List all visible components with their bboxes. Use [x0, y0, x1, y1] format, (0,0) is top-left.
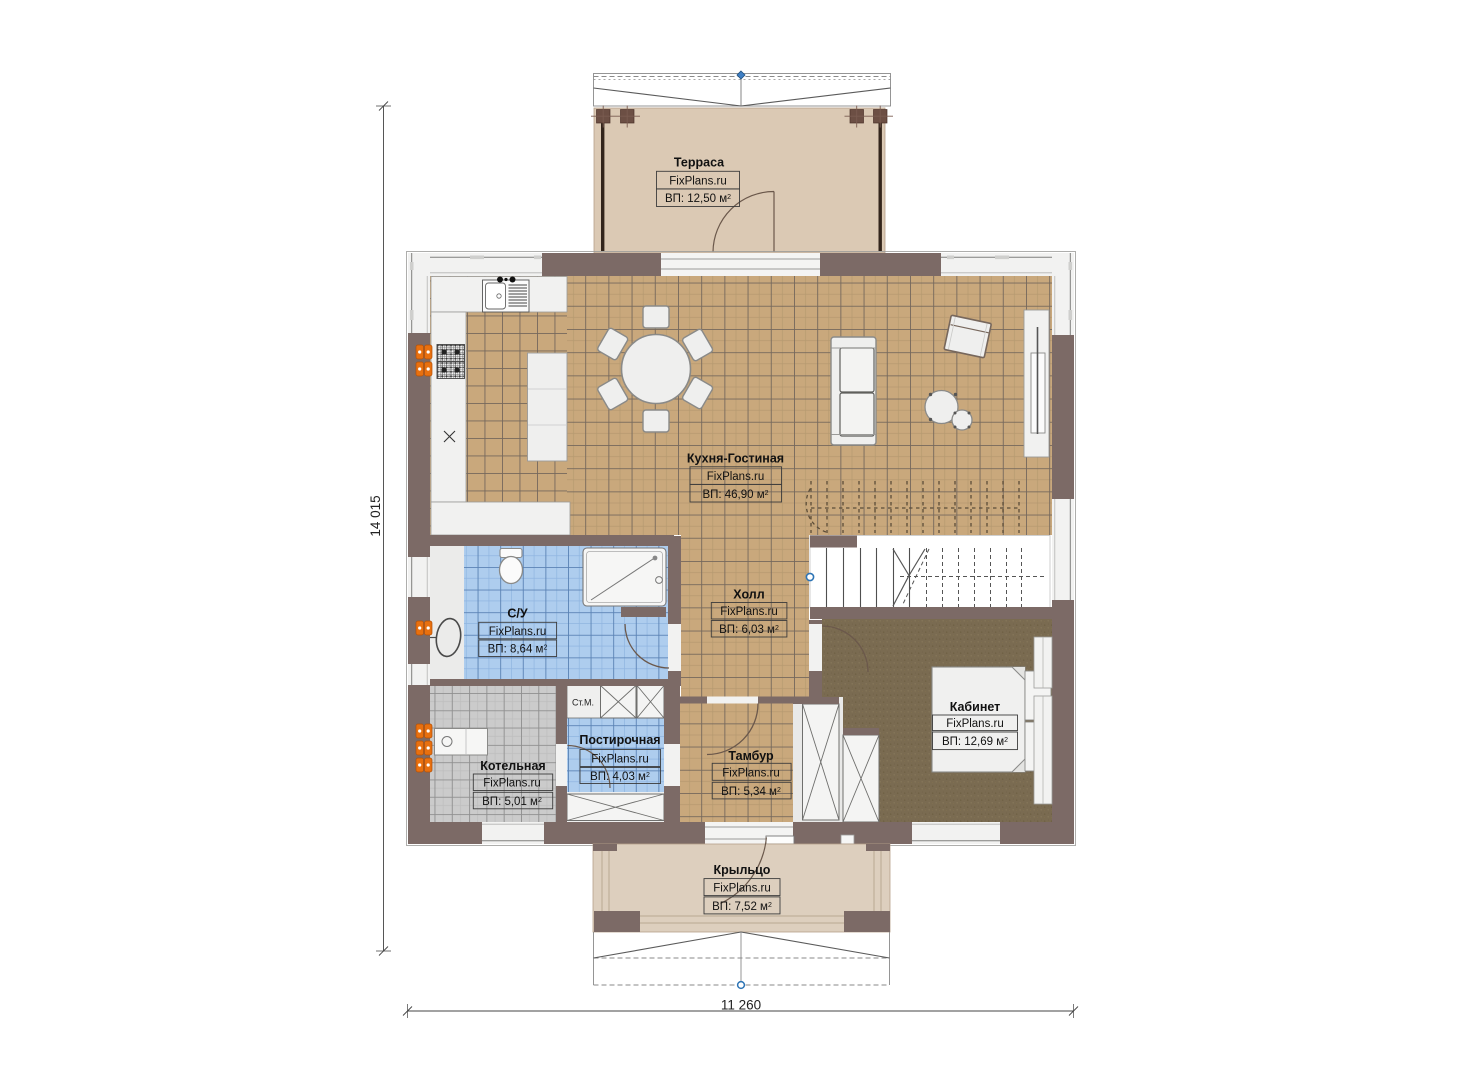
svg-text:Холл: Холл: [733, 588, 764, 602]
svg-text:FixPlans.ru: FixPlans.ru: [720, 606, 778, 618]
svg-text:С/У: С/У: [507, 607, 528, 621]
svg-text:11 260: 11 260: [721, 998, 761, 1013]
svg-text:ВП: 6,03 м2: ВП: 6,03 м2: [719, 624, 779, 636]
svg-text:Котельная: Котельная: [480, 759, 545, 773]
svg-text:ВП: 12,50 м2: ВП: 12,50 м2: [665, 193, 731, 205]
svg-text:ВП: 7,52 м2: ВП: 7,52 м2: [712, 901, 772, 913]
svg-text:Постирочная: Постирочная: [579, 733, 660, 747]
svg-text:ВП: 5,34 м2: ВП: 5,34 м2: [721, 786, 781, 798]
svg-text:FixPlans.ru: FixPlans.ru: [489, 626, 547, 638]
svg-text:Тамбур: Тамбур: [728, 749, 774, 763]
svg-text:ВП: 4,03 м2: ВП: 4,03 м2: [590, 771, 650, 783]
svg-text:FixPlans.ru: FixPlans.ru: [669, 176, 727, 188]
svg-text:Крыльцо: Крыльцо: [714, 863, 771, 877]
svg-text:ВП: 5,01 м2: ВП: 5,01 м2: [482, 796, 542, 808]
svg-text:FixPlans.ru: FixPlans.ru: [483, 778, 541, 790]
svg-text:Терраса: Терраса: [674, 156, 725, 170]
svg-text:ВП: 8,64 м2: ВП: 8,64 м2: [488, 643, 548, 655]
svg-text:FixPlans.ru: FixPlans.ru: [946, 718, 1004, 730]
svg-text:FixPlans.ru: FixPlans.ru: [722, 768, 780, 780]
svg-text:Кабинет: Кабинет: [950, 700, 1001, 714]
svg-text:FixPlans.ru: FixPlans.ru: [591, 754, 649, 766]
svg-text:14 015: 14 015: [368, 495, 383, 536]
svg-text:FixPlans.ru: FixPlans.ru: [713, 883, 771, 895]
svg-text:ВП: 12,69 м2: ВП: 12,69 м2: [942, 736, 1008, 748]
svg-text:FixPlans.ru: FixPlans.ru: [707, 471, 765, 483]
svg-text:Ст.М.: Ст.М.: [572, 698, 594, 708]
svg-text:ВП: 46,90 м2: ВП: 46,90 м2: [702, 489, 768, 501]
svg-text:Кухня-Гостиная: Кухня-Гостиная: [687, 452, 784, 466]
